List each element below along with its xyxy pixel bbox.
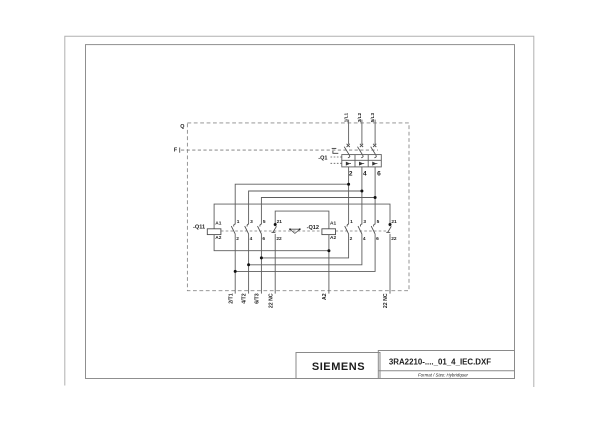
svg-text:21: 21: [277, 219, 283, 225]
svg-text:A1: A1: [330, 221, 336, 227]
svg-text:6: 6: [377, 170, 381, 177]
svg-text:2/T1: 2/T1: [228, 293, 234, 303]
svg-text:3RA2210-...._01_4_IEC.DXF: 3RA2210-...._01_4_IEC.DXF: [389, 357, 491, 366]
svg-text:Format / Size: Hybridquer: Format / Size: Hybridquer: [418, 372, 469, 377]
svg-text:2: 2: [236, 236, 239, 242]
svg-text:A1: A1: [215, 221, 221, 227]
svg-text:-Q1: -Q1: [318, 155, 327, 161]
svg-text:22: 22: [391, 236, 397, 242]
svg-text:4: 4: [250, 236, 253, 242]
svg-text:22 NC: 22 NC: [383, 293, 389, 308]
svg-text:22 NC: 22 NC: [268, 293, 274, 308]
svg-text:5: 5: [263, 219, 266, 225]
svg-text:6: 6: [376, 236, 379, 242]
svg-text:4: 4: [363, 170, 367, 177]
svg-text:22: 22: [276, 236, 282, 242]
svg-text:-Q12: -Q12: [307, 225, 319, 231]
svg-text:SIEMENS: SIEMENS: [312, 361, 365, 373]
svg-text:2: 2: [350, 236, 353, 242]
svg-text:6/T3: 6/T3: [255, 293, 261, 303]
svg-text:1: 1: [237, 219, 240, 225]
svg-text:Q: Q: [180, 124, 184, 130]
svg-text:21: 21: [391, 219, 397, 225]
svg-text:3: 3: [363, 219, 366, 225]
svg-text:A2: A2: [322, 293, 328, 300]
svg-text:A2: A2: [330, 235, 336, 241]
svg-text:3: 3: [250, 219, 253, 225]
svg-text:4/T2: 4/T2: [242, 293, 248, 303]
svg-text:A2: A2: [215, 235, 221, 241]
svg-text:5: 5: [377, 219, 380, 225]
svg-text:2: 2: [349, 170, 353, 177]
svg-text:4: 4: [363, 236, 366, 242]
svg-text:1: 1: [350, 219, 353, 225]
svg-text:6: 6: [262, 236, 265, 242]
svg-text:-Q11: -Q11: [193, 225, 205, 231]
